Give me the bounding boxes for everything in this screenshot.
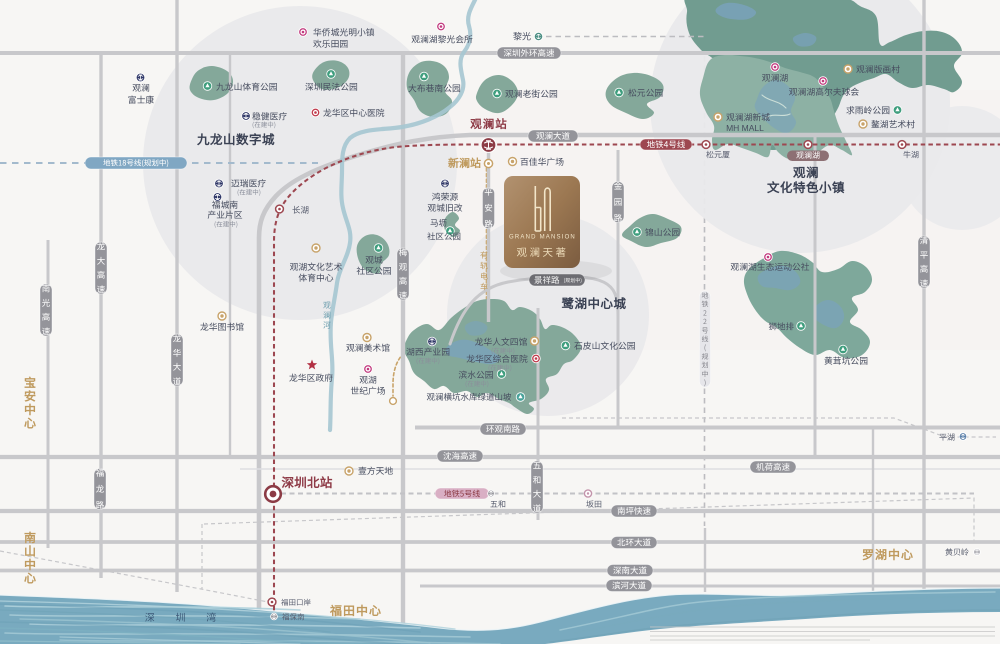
svg-text:新澜站: 新澜站 (448, 155, 481, 171)
svg-text:地铁18号线(规划中): 地铁18号线(规划中) (103, 158, 169, 169)
svg-text:南坪快速: 南坪快速 (617, 505, 652, 517)
svg-text:大: 大 (173, 361, 182, 373)
svg-text:道: 道 (173, 376, 182, 388)
svg-text:MH MALL: MH MALL (726, 122, 764, 134)
svg-text:观澜湖黎光会所: 观澜湖黎光会所 (411, 33, 473, 46)
svg-text:黎光: 黎光 (513, 30, 531, 43)
svg-text:观澜站: 观澜站 (470, 116, 508, 132)
svg-text:心: 心 (24, 570, 36, 587)
svg-text:深南大道: 深南大道 (613, 565, 648, 577)
svg-text:轨: 轨 (480, 261, 488, 272)
svg-text:福田口岸: 福田口岸 (281, 597, 311, 608)
svg-text:机荷高速: 机荷高速 (756, 461, 791, 473)
svg-text:观城旧改: 观城旧改 (427, 201, 462, 214)
svg-text:鹭湖中心城: 鹭湖中心城 (561, 293, 626, 312)
svg-text:松元公园: 松元公园 (628, 86, 663, 99)
svg-text:体育中心: 体育中心 (298, 271, 333, 284)
svg-text:清: 清 (920, 235, 929, 247)
svg-text:深圳民法公园: 深圳民法公园 (305, 80, 358, 93)
svg-text:路: 路 (614, 212, 623, 224)
svg-text:福: 福 (96, 467, 105, 479)
svg-text:五: 五 (533, 460, 542, 472)
svg-text:园: 园 (614, 196, 623, 208)
svg-text:道: 道 (533, 503, 542, 515)
svg-text:路: 路 (96, 499, 105, 511)
svg-text:龙华图书馆: 龙华图书馆 (200, 320, 244, 333)
svg-text:(在建中): (在建中) (252, 119, 276, 129)
svg-text:欢乐田园: 欢乐田园 (313, 37, 348, 50)
svg-text:大布巷南公园: 大布巷南公园 (408, 82, 461, 95)
svg-text:速: 速 (42, 326, 51, 338)
svg-text:文化特色小镇: 文化特色小镇 (766, 177, 845, 196)
svg-text:速: 速 (399, 290, 408, 302)
svg-text:观澜版画村: 观澜版画村 (856, 63, 900, 76)
svg-text:深 圳 湾: 深 圳 湾 (145, 609, 226, 624)
svg-text:车: 车 (480, 282, 488, 293)
svg-text:平湖: 平湖 (939, 432, 955, 443)
svg-text:(在建中): (在建中) (465, 378, 489, 388)
svg-text:GRAND MANSION: GRAND MANSION (509, 235, 576, 241)
svg-text:高: 高 (920, 263, 929, 275)
svg-text:大: 大 (533, 488, 542, 500)
svg-text:华: 华 (173, 347, 182, 359)
svg-text:九龙山体育公园: 九龙山体育公园 (216, 80, 278, 93)
svg-text:石皮山文化公园: 石皮山文化公园 (574, 339, 636, 352)
svg-text:锦山公园: 锦山公园 (645, 226, 680, 239)
svg-text:福保南: 福保南 (282, 612, 305, 623)
svg-text:九龙山数字城: 九龙山数字城 (196, 129, 275, 148)
svg-text:(在建中): (在建中) (214, 219, 238, 229)
svg-text:观澜天著: 观澜天著 (517, 245, 569, 260)
svg-text:地铁5号线: 地铁5号线 (444, 488, 480, 499)
svg-text:狮地排: 狮地排 (768, 321, 794, 333)
svg-text:松元厦: 松元厦 (706, 150, 730, 161)
svg-text:沈海高速: 沈海高速 (443, 450, 478, 462)
svg-text:马坜: 马坜 (430, 217, 448, 229)
svg-text:路: 路 (484, 218, 493, 230)
svg-text:社区公园: 社区公园 (356, 264, 391, 277)
svg-text:光: 光 (42, 297, 51, 309)
svg-text:北环大道: 北环大道 (617, 537, 652, 549)
svg-text:高: 高 (42, 311, 51, 323)
svg-text:深圳外环高速: 深圳外环高速 (503, 47, 555, 59)
svg-text:环观南路: 环观南路 (486, 423, 521, 435)
svg-text:地铁4号线: 地铁4号线 (647, 139, 686, 151)
svg-text:龙华区政府: 龙华区政府 (289, 371, 333, 384)
svg-text:深圳北站: 深圳北站 (282, 472, 333, 491)
svg-text:黄茸坑公园: 黄茸坑公园 (824, 354, 868, 367)
svg-text:龙: 龙 (96, 483, 105, 495)
svg-text:梅: 梅 (399, 247, 408, 259)
svg-text:观澜大道: 观澜大道 (536, 130, 571, 142)
svg-text:速: 速 (920, 278, 929, 290)
svg-text:滨河大道: 滨河大道 (612, 580, 647, 592)
svg-text:南: 南 (42, 283, 51, 295)
svg-text:高: 高 (97, 269, 106, 281)
svg-text:求雨岭公园: 求雨岭公园 (846, 104, 890, 117)
svg-text:高: 高 (399, 275, 408, 287)
svg-text:电: 电 (480, 271, 488, 282)
svg-text:壹方天地: 壹方天地 (358, 464, 393, 477)
svg-text:龙: 龙 (97, 241, 106, 253)
svg-text:和: 和 (533, 474, 542, 486)
svg-text:(在建中): (在建中) (237, 187, 261, 197)
svg-text:观澜横坑水库绿道山坡: 观澜横坑水库绿道山坡 (426, 391, 512, 403)
svg-text:(在建中): (在建中) (416, 355, 440, 365)
svg-text:福田中心: 福田中心 (329, 602, 382, 619)
svg-text:龙: 龙 (173, 333, 182, 345)
svg-text:大: 大 (97, 255, 106, 267)
svg-text:长湖: 长湖 (292, 204, 309, 216)
svg-text:心: 心 (24, 415, 36, 432)
svg-text:五和: 五和 (490, 499, 506, 510)
svg-text:社区公园: 社区公园 (427, 231, 461, 243)
svg-text:观澜湖: 观澜湖 (796, 150, 820, 161)
svg-text:牛湖: 牛湖 (903, 150, 919, 161)
svg-text:观澜湖: 观澜湖 (762, 71, 789, 84)
svg-text:速: 速 (97, 284, 106, 296)
svg-text:龙华区中心医院: 龙华区中心医院 (323, 106, 385, 119)
svg-text:金: 金 (614, 180, 623, 192)
svg-text:河: 河 (323, 320, 331, 331)
svg-text:观澜湖生态运动公社: 观澜湖生态运动公社 (730, 260, 809, 273)
svg-text:世纪广场: 世纪广场 (350, 384, 385, 397)
svg-text:观澜美术馆: 观澜美术馆 (346, 341, 390, 354)
svg-text:观: 观 (399, 261, 408, 273)
svg-text:): ) (704, 378, 706, 388)
svg-text:观澜老街公园: 观澜老街公园 (505, 87, 558, 100)
svg-text:平: 平 (484, 186, 493, 198)
svg-text:安: 安 (484, 202, 493, 214)
svg-text:罗湖中心: 罗湖中心 (862, 546, 914, 563)
svg-text:百佳华广场: 百佳华广场 (520, 155, 564, 168)
svg-text:黄贝岭: 黄贝岭 (945, 547, 969, 558)
svg-text:富士康: 富士康 (128, 93, 155, 106)
svg-text:有: 有 (480, 250, 488, 261)
svg-text:平: 平 (920, 249, 929, 261)
svg-text:坂田: 坂田 (586, 499, 602, 510)
svg-text:鳌湖艺术村: 鳌湖艺术村 (871, 118, 915, 131)
svg-text:观澜湖高尔夫球会: 观澜湖高尔夫球会 (789, 85, 860, 98)
